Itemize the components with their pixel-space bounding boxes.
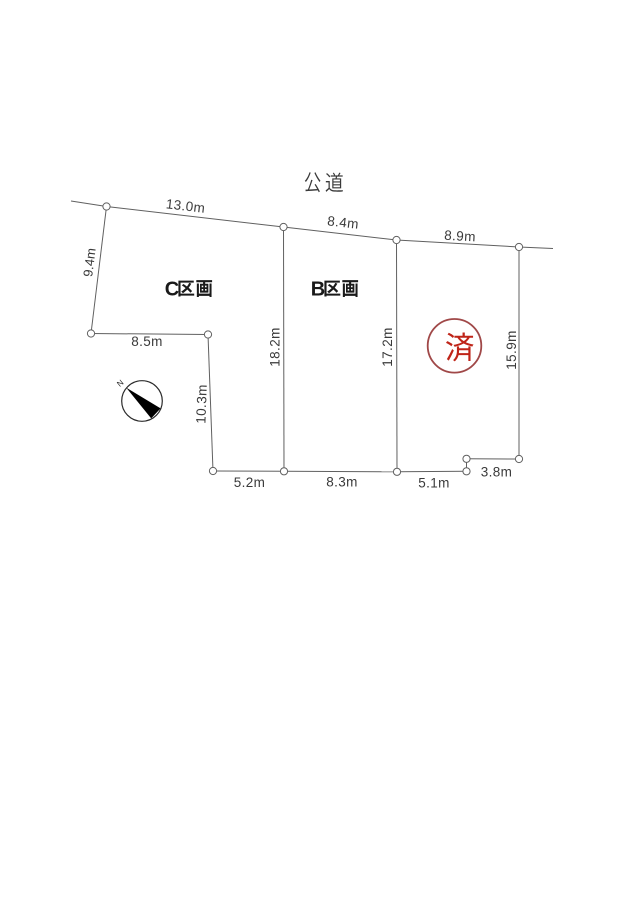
svg-text:15.9m: 15.9m <box>504 330 519 370</box>
svg-text:18.2m: 18.2m <box>268 327 283 367</box>
svg-text:8.3m: 8.3m <box>326 475 358 490</box>
svg-text:C: C <box>165 279 179 301</box>
svg-text:8.9m: 8.9m <box>444 228 476 245</box>
svg-text:5.1m: 5.1m <box>418 476 450 491</box>
svg-text:10.3m: 10.3m <box>193 384 209 424</box>
svg-text:3.8m: 3.8m <box>481 465 513 480</box>
svg-text:B: B <box>311 279 325 301</box>
svg-text:5.2m: 5.2m <box>234 475 266 490</box>
svg-text:8.5m: 8.5m <box>131 334 163 349</box>
svg-text:17.2m: 17.2m <box>380 327 395 367</box>
